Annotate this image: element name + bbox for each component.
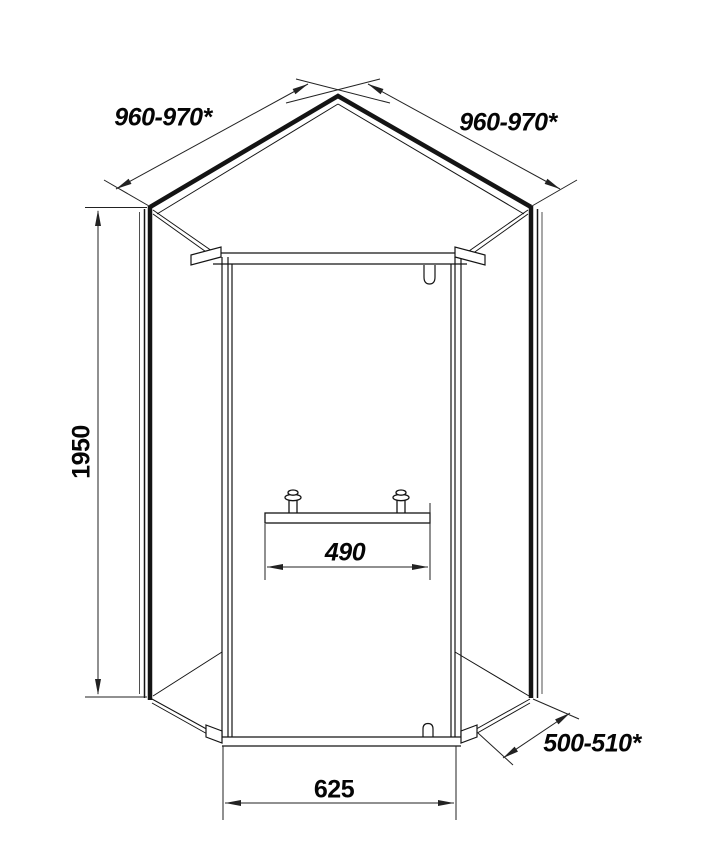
dim-label-top-right-wall: 960-970* [459,111,556,136]
front-frame [213,253,467,746]
dimension-top-left-wall [104,79,390,206]
door-tabs [423,265,435,737]
dimension-top-right-wall [286,79,577,206]
technical-drawing-canvas: 960-970* 960-970* 1950 490 625 500-510* [0,0,710,867]
dim-label-front-width: 625 [314,778,354,803]
corner-caps [191,247,485,743]
dim-label-top-left-wall: 960-970* [114,106,211,131]
enclosure-walls [140,96,543,700]
dim-label-side-depth: 500-510* [543,732,640,757]
dim-label-handle: 490 [325,541,365,566]
dim-label-height: 1950 [70,425,95,479]
towel-handle [265,490,430,523]
